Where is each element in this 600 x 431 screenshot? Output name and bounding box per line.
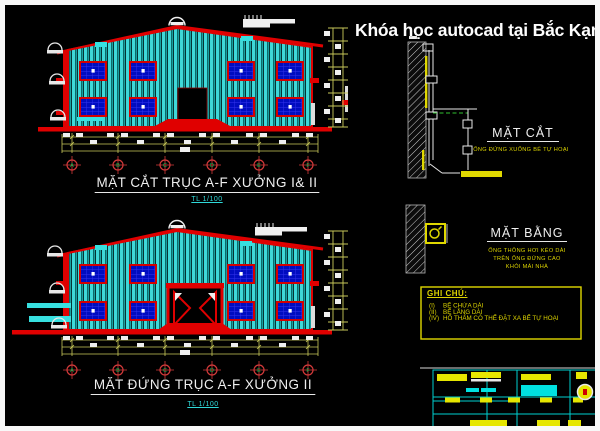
window [228, 62, 254, 80]
elevation-view-title: MẶT ĐỨNG TRỤC A-F XƯỞNG II [91, 376, 316, 395]
axis-label: D [210, 163, 214, 169]
plan-detail-notes: ỐNG THÔNG HƠI KÉO DÀI TRÊN ỐNG ĐỨNG CAO … [457, 247, 597, 271]
roof-flag-icon [243, 15, 295, 28]
window [277, 98, 303, 116]
stamp-logo-icon [578, 385, 593, 400]
titleblock-text-marks [466, 388, 496, 392]
window [80, 62, 106, 80]
window [228, 265, 254, 283]
plan-detail-title: MẶT BẰNG [487, 226, 567, 242]
axis-label: B [116, 368, 120, 374]
elevation-scale-label: TL 1/100 [86, 401, 320, 408]
window [80, 302, 106, 320]
window [80, 98, 106, 116]
axis-label: E [257, 163, 261, 169]
axis-label: F [306, 368, 310, 374]
window [277, 302, 303, 320]
cad-drawing-canvas: A B C D E F [0, 0, 600, 431]
axis-label: C [163, 163, 167, 169]
window [80, 265, 106, 283]
watermark-title: Khóa học autocad tại Bắc Kạn [355, 20, 597, 41]
cad-linework: A B C D E F [0, 0, 600, 431]
axis-label: F [306, 163, 310, 169]
section-view-title: MẶT CẮT TRỤC A-F XƯỞNG I& II [95, 174, 320, 193]
plan-detail-figure [406, 205, 447, 273]
axis-row-section: A B C D E F [63, 156, 317, 174]
dimension-chain [62, 336, 318, 356]
window [277, 62, 303, 80]
axis-label: B [116, 163, 120, 169]
plan-note-line: TRÊN ỐNG ĐỨNG CAO [457, 255, 597, 263]
plan-note-line: ỐNG THÔNG HƠI KÉO DÀI [457, 247, 597, 255]
window [130, 265, 156, 283]
window [277, 265, 303, 283]
axis-label: D [210, 368, 214, 374]
roof-vent-icon [169, 221, 185, 229]
ground-line [12, 330, 332, 335]
ground-line [38, 127, 332, 132]
level-mark-icon [47, 246, 63, 257]
axis-label: A [70, 368, 74, 374]
dimension-chain [62, 133, 318, 153]
axis-label: E [257, 368, 261, 374]
notes-list: (I)BỂ CHỨA DÀI (II)BỂ LẮNG DÀI (IV)HỐ TH… [429, 303, 579, 322]
note-item: (IV)HỐ THẤM CÓ THỂ ĐẶT XA BỂ TỰ HOẠI [429, 315, 579, 321]
notes-title: GHI CHÚ: [427, 289, 467, 298]
roof-flag-icon [255, 223, 307, 236]
axis-label: C [163, 368, 167, 374]
section-scale-label: TL 1/100 [90, 196, 324, 203]
note-item-label: (IV) [429, 315, 443, 321]
elevation-dim-ladder [324, 28, 348, 127]
window [130, 62, 156, 80]
level-mark-icon [47, 43, 63, 54]
window [228, 302, 254, 320]
note-item-text: HỐ THẤM CÓ THỂ ĐẶT XA BỂ TỰ HOẠI [443, 315, 558, 322]
elevation-building-figure [12, 221, 348, 357]
section-detail-title: MẶT CẮT [487, 126, 559, 142]
section-building-figure [38, 15, 348, 153]
window [130, 98, 156, 116]
elevation-dim-ladder [324, 231, 348, 330]
roof-vent-icon [169, 18, 185, 26]
section-detail-note: ỐNG ĐỨNG XUỐNG BỂ TỰ HOẠI [451, 146, 591, 154]
window [228, 98, 254, 116]
title-block [420, 362, 598, 428]
section-detail-figure [408, 36, 502, 178]
plan-note-line: KHỎI MÁI NHÀ [457, 263, 597, 271]
window [130, 302, 156, 320]
axis-label: A [70, 163, 74, 169]
